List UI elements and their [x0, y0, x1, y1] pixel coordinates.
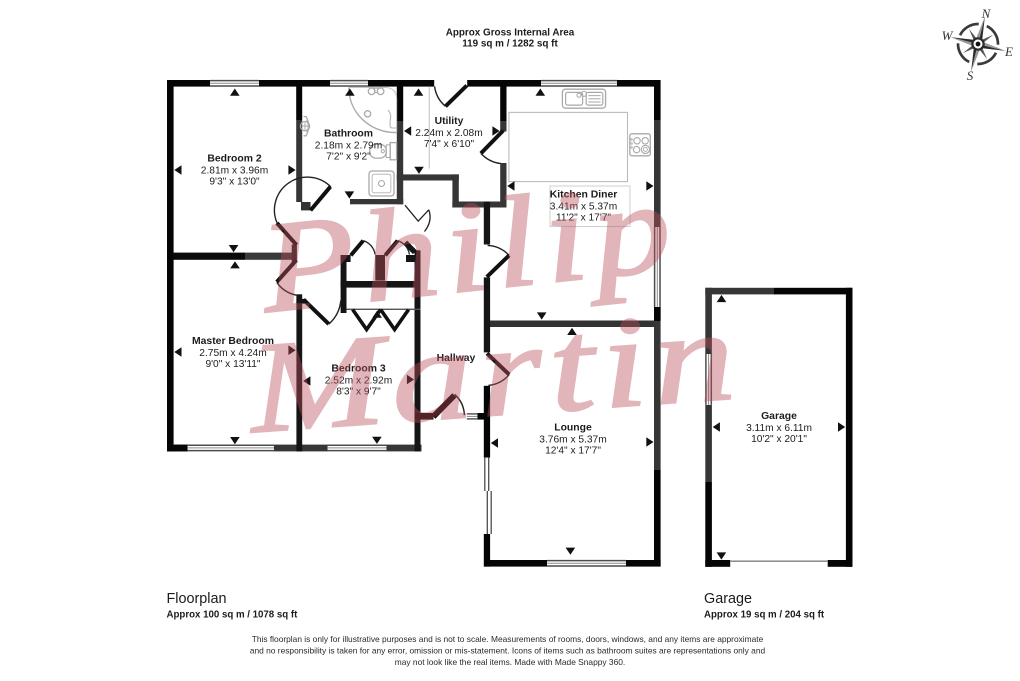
svg-text:Floorplan: Floorplan [167, 591, 227, 607]
svg-text:7'4" x 6'10": 7'4" x 6'10" [424, 139, 475, 150]
svg-text:119 sq m / 1282 sq ft: 119 sq m / 1282 sq ft [462, 38, 558, 49]
svg-text:Approx 100 sq m / 1078 sq ft: Approx 100 sq m / 1078 sq ft [167, 610, 299, 621]
svg-text:9'3" x 13'0": 9'3" x 13'0" [209, 177, 260, 188]
svg-text:E: E [1004, 44, 1013, 59]
svg-text:S: S [967, 68, 974, 83]
svg-text:3.11m x 6.11m: 3.11m x 6.11m [746, 423, 812, 434]
svg-text:2.24m x 2.08m: 2.24m x 2.08m [415, 128, 482, 139]
svg-text:Utility: Utility [435, 116, 464, 127]
svg-text:2.18m x 2.79m: 2.18m x 2.79m [315, 141, 382, 152]
svg-text:7'2" x 9'2": 7'2" x 9'2" [326, 152, 371, 163]
svg-text:2.81m x 3.96m: 2.81m x 3.96m [201, 166, 268, 177]
svg-text:may not look like the real ite: may not look like the real items. Made w… [395, 657, 625, 667]
svg-text:Approx Gross Internal Area: Approx Gross Internal Area [446, 27, 575, 38]
svg-text:Approx 19 sq m / 204 sq ft: Approx 19 sq m / 204 sq ft [704, 610, 825, 621]
svg-text:Garage: Garage [704, 591, 752, 607]
svg-text:N: N [981, 6, 992, 21]
svg-text:Bedroom 2: Bedroom 2 [207, 154, 261, 165]
svg-text:Bathroom: Bathroom [324, 129, 373, 140]
svg-text:and no responsibility is taken: and no responsibility is taken for any e… [250, 646, 766, 656]
svg-text:12'4" x 17'7": 12'4" x 17'7" [545, 446, 601, 457]
svg-text:10'2" x 20'1": 10'2" x 20'1" [751, 434, 807, 445]
svg-text:This floorplan is only for ill: This floorplan is only for illustrative … [252, 634, 764, 644]
svg-text:Garage: Garage [761, 411, 797, 422]
svg-text:W: W [942, 28, 954, 43]
